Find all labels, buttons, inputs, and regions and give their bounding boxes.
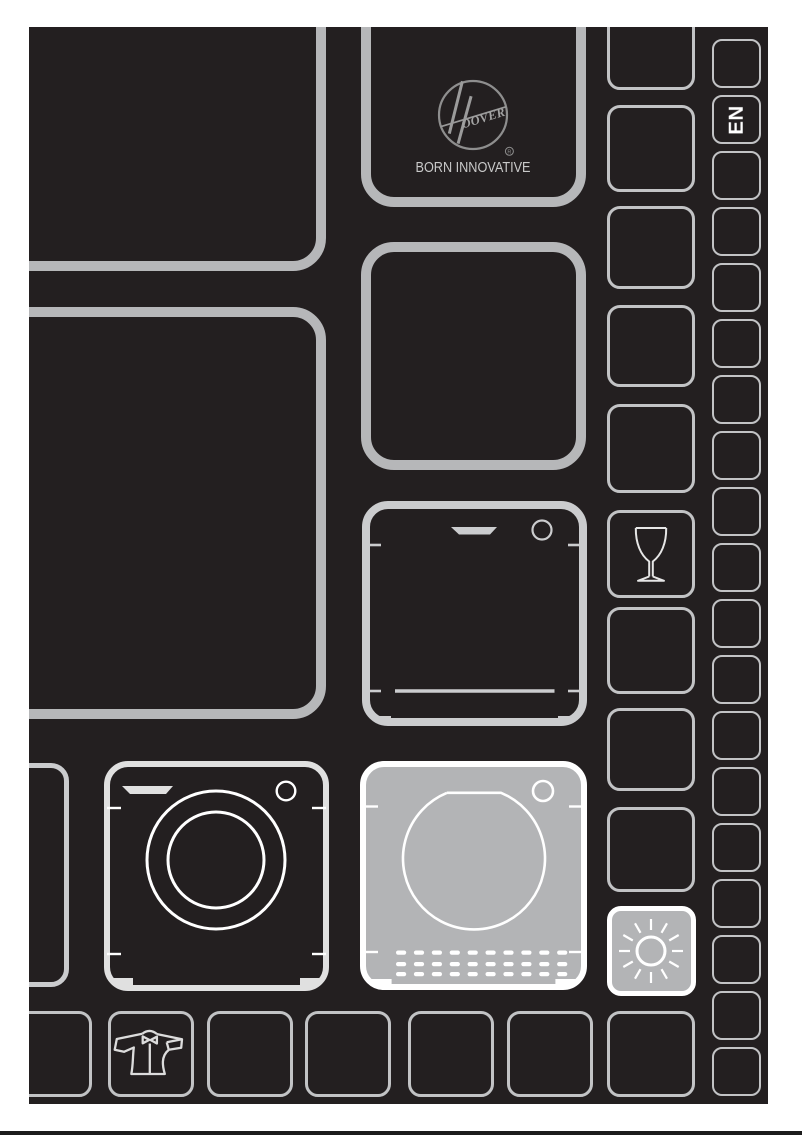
svg-text:BORN INNOVATIVE: BORN INNOVATIVE <box>416 160 531 176</box>
svg-text:R: R <box>507 150 511 156</box>
